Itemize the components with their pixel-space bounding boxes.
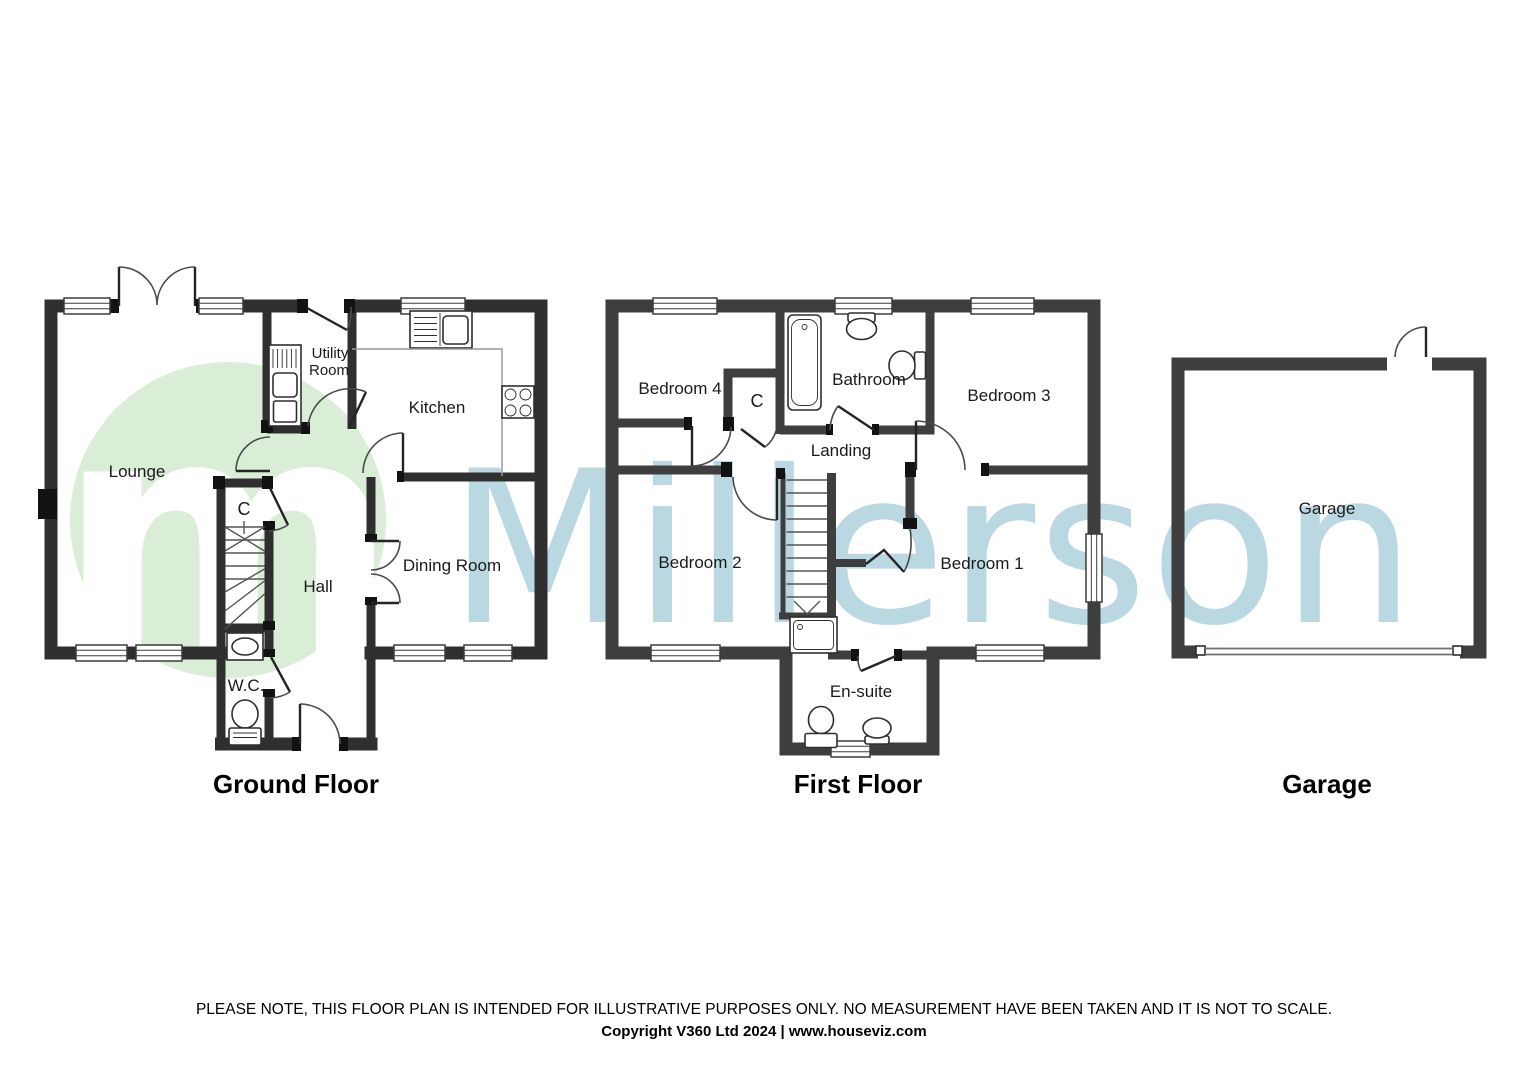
chimney-breast [38, 489, 57, 519]
french-doors [119, 267, 195, 306]
shower-fixture [790, 617, 837, 653]
disclaimer-text: PLEASE NOTE, THIS FLOOR PLAN IS INTENDED… [0, 1001, 1528, 1019]
ensuite-toilet-fixture [805, 707, 837, 748]
millerson-watermark: m Millerson [56, 346, 1418, 730]
floorplan-page: m Millerson [0, 0, 1528, 1080]
label-wc: W.C. [228, 676, 265, 695]
window [136, 645, 182, 661]
window [653, 298, 717, 314]
ground-floor-title: Ground Floor [213, 769, 379, 799]
utility-sink-unit [269, 345, 301, 426]
label-landing: Landing [811, 441, 872, 460]
garage-side-door [1395, 327, 1426, 357]
window [64, 298, 110, 314]
label-lounge: Lounge [109, 462, 166, 481]
label-dining-room: Dining Room [403, 556, 501, 575]
brand-watermark-text: Millerson [448, 425, 1418, 672]
copyright-text: Copyright V360 Ltd 2024 | www.houseviz.c… [0, 1023, 1528, 1040]
window [199, 298, 243, 314]
window [971, 298, 1034, 314]
kitchen-sink-unit [410, 311, 472, 348]
label-garage: Garage [1299, 499, 1356, 518]
label-ensuite: En-suite [830, 682, 892, 701]
window [76, 645, 127, 661]
window [651, 645, 720, 661]
label-bedroom4: Bedroom 4 [638, 379, 721, 398]
wc-toilet-fixture [229, 700, 261, 745]
bathroom-sink-fixture [847, 313, 877, 340]
floorplan-drawing: m Millerson [0, 0, 1528, 1080]
label-bedroom3: Bedroom 3 [967, 386, 1050, 405]
label-utility-line1: Utility [312, 345, 349, 362]
wc-sink-fixture [227, 633, 263, 660]
label-kitchen: Kitchen [409, 398, 466, 417]
label-first-cupboard: C [751, 391, 764, 411]
ensuite-sink-fixture [863, 718, 891, 744]
label-bedroom1: Bedroom 1 [940, 554, 1023, 573]
window [835, 298, 892, 314]
label-bedroom2: Bedroom 2 [658, 553, 741, 572]
window [976, 645, 1044, 661]
label-bathroom: Bathroom [832, 370, 906, 389]
window [1086, 534, 1102, 602]
first-floor-title: First Floor [794, 769, 923, 799]
label-utility-line2: Room [309, 362, 349, 379]
hob-fixture [502, 386, 534, 418]
label-hall: Hall [303, 577, 332, 596]
garage-title: Garage [1282, 769, 1372, 799]
window [394, 645, 445, 661]
window [464, 645, 512, 661]
bathtub-fixture [788, 315, 821, 410]
label-ground-cupboard: C [238, 499, 251, 519]
